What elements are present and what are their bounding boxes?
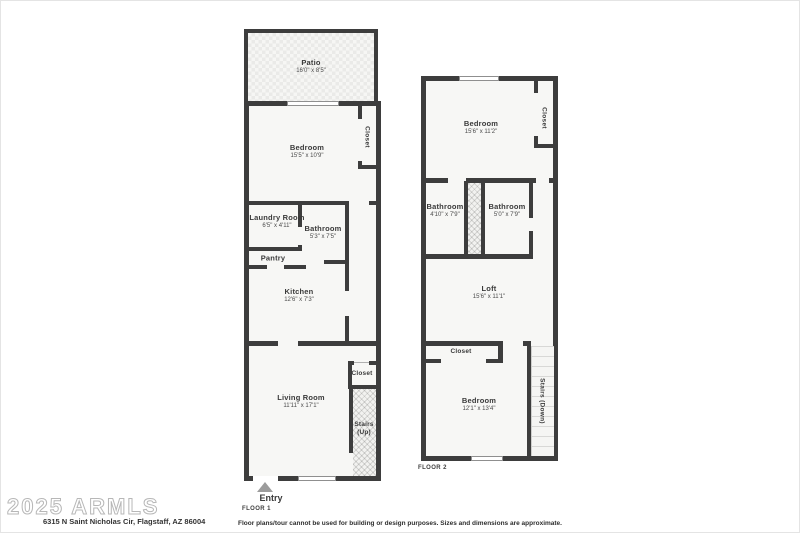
room-dims: 6'5" x 4'11" bbox=[249, 223, 304, 231]
closet-top-label: Closet bbox=[541, 107, 548, 129]
room-dims: 5'3" x 7'5" bbox=[304, 234, 341, 242]
stairs-up-label: Stairs (Up) bbox=[354, 421, 373, 437]
room-dims: 15'5" x 10'9" bbox=[290, 153, 324, 161]
wall-segment bbox=[426, 341, 501, 346]
room-name: Loft bbox=[473, 284, 505, 293]
pantry-label: Pantry bbox=[261, 253, 286, 262]
bedroom-label: Bedroom 15'5" x 10'9" bbox=[290, 143, 324, 161]
patio-door-window bbox=[287, 101, 339, 106]
wall-segment bbox=[534, 81, 538, 93]
patio-label: Patio 16'0" x 8'5" bbox=[296, 58, 326, 76]
wall-segment bbox=[369, 361, 376, 365]
laundry-label: Laundry Room 6'5" x 4'11" bbox=[249, 213, 304, 231]
room-dims: 5'0" x 7'9" bbox=[488, 212, 525, 220]
closet-door-line bbox=[354, 362, 369, 363]
room-dims: 15'6" x 11'2" bbox=[464, 129, 498, 137]
shaft-area bbox=[468, 183, 481, 257]
room-name: (Up) bbox=[354, 429, 373, 437]
wall-segment bbox=[426, 359, 441, 363]
bathroom-left-label: Bathroom 4'10" x 7'9" bbox=[426, 202, 463, 220]
room-name: Closet bbox=[450, 348, 471, 356]
living-room-window bbox=[298, 476, 336, 481]
kitchen-label: Kitchen 12'6" x 7'3" bbox=[284, 287, 314, 305]
wall-segment bbox=[249, 265, 267, 269]
bathroom-label: Bathroom 5'3" x 7'5" bbox=[304, 224, 341, 242]
floor1-tag: FLOOR 1 bbox=[242, 506, 271, 512]
wall-segment bbox=[426, 178, 448, 183]
room-dims: 4'10" x 7'9" bbox=[426, 212, 463, 220]
room-dims: 12'6" x 7'3" bbox=[284, 297, 314, 305]
bedroom-closet-label: Closet bbox=[364, 126, 371, 148]
wall-segment bbox=[481, 181, 485, 259]
wall-segment bbox=[534, 144, 553, 148]
wall-segment bbox=[529, 181, 533, 218]
wall-segment bbox=[249, 247, 302, 251]
wall-segment bbox=[345, 201, 349, 264]
wall-segment bbox=[358, 165, 376, 169]
entry-door-opening bbox=[253, 476, 278, 481]
wall-segment bbox=[249, 341, 278, 346]
room-name: Bedroom bbox=[464, 119, 498, 128]
living-room-label: Living Room 11'11" x 17'1" bbox=[277, 393, 325, 411]
room-name: Living Room bbox=[277, 393, 325, 402]
wall-segment bbox=[549, 178, 553, 183]
living-closet-label: Closet bbox=[351, 370, 372, 378]
room-dims: 11'11" x 17'1" bbox=[277, 403, 325, 411]
entry-arrow-icon bbox=[257, 482, 273, 492]
floorplan-canvas: Patio 16'0" x 8'5" Bedroom 15'5" x 10'9"… bbox=[0, 0, 800, 533]
bedroom-top-window bbox=[459, 76, 499, 81]
room-name: Patio bbox=[296, 58, 326, 67]
bathroom-right-label: Bathroom 5'0" x 7'9" bbox=[488, 202, 525, 220]
wall-segment bbox=[529, 231, 533, 259]
room-name: Bathroom bbox=[426, 202, 463, 211]
entry-label: Entry bbox=[259, 493, 282, 503]
room-dims: 15'6" x 11'1" bbox=[473, 294, 505, 302]
stairs-down-label: Stairs (Down) bbox=[539, 378, 546, 424]
wall-segment bbox=[345, 264, 349, 291]
bedroom-top-label: Bedroom 15'6" x 11'2" bbox=[464, 119, 498, 137]
room-name: Bathroom bbox=[304, 224, 341, 233]
closet-bottom-label: Closet bbox=[450, 348, 471, 356]
wall-segment bbox=[426, 254, 533, 259]
room-name: Closet bbox=[351, 370, 372, 378]
room-name: Laundry Room bbox=[249, 213, 304, 222]
room-name: Stairs bbox=[354, 421, 373, 429]
room-name: Pantry bbox=[261, 253, 286, 262]
wall-segment bbox=[369, 201, 376, 205]
floor2-tag: FLOOR 2 bbox=[418, 465, 447, 471]
bedroom-bottom-window bbox=[471, 456, 503, 461]
wall-segment bbox=[298, 341, 376, 346]
room-dims: 16'0" x 8'5" bbox=[296, 68, 326, 76]
room-name: Kitchen bbox=[284, 287, 314, 296]
disclaimer-text: Floor plans/tour cannot be used for buil… bbox=[1, 520, 799, 527]
wall-segment bbox=[498, 341, 503, 363]
wall-segment bbox=[358, 105, 362, 119]
loft-label: Loft 15'6" x 11'1" bbox=[473, 284, 505, 302]
wall-segment bbox=[284, 265, 306, 269]
room-name: Bedroom bbox=[290, 143, 324, 152]
room-name: Bedroom bbox=[462, 396, 496, 405]
room-name: Bathroom bbox=[488, 202, 525, 211]
bedroom-bottom-label: Bedroom 12'1" x 13'4" bbox=[462, 396, 496, 414]
room-dims: 12'1" x 13'4" bbox=[462, 406, 496, 414]
